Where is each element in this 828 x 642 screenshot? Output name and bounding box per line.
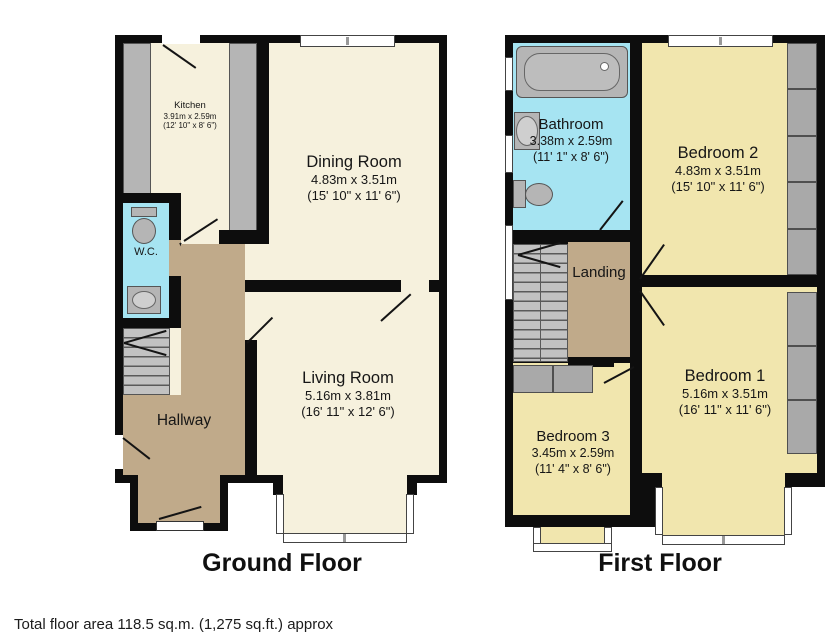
porch-floor (138, 475, 220, 523)
room-dims-m: 5.16m x 3.51m (635, 386, 815, 402)
room-label-kitchen: Kitchen 3.91m x 2.59m (12' 10" x 8' 6") (140, 100, 240, 131)
room-name: W.C. (123, 246, 169, 259)
room-label-wc: W.C. (123, 246, 169, 259)
hallway-floor (181, 244, 245, 475)
window (276, 494, 284, 534)
window-divider (343, 534, 346, 542)
kitchen-counter (229, 43, 257, 232)
room-dims-ft: (15' 10" x 11' 6") (264, 188, 444, 204)
landing-floor (568, 242, 630, 357)
window (784, 487, 792, 535)
wall (630, 230, 642, 242)
window-divider (346, 37, 349, 45)
door-opening (169, 240, 181, 276)
room-name: Bedroom 1 (635, 366, 815, 386)
door-opening (115, 435, 123, 469)
first-floor-title: First Floor (540, 549, 780, 578)
wall (257, 35, 269, 244)
room-label-dining: Dining Room 4.83m x 3.51m (15' 10" x 11'… (264, 152, 444, 204)
wall (505, 230, 600, 242)
bay-floor (283, 475, 407, 533)
room-name: Bedroom 2 (628, 143, 808, 163)
room-dims-m: 3.45m x 2.59m (503, 446, 643, 461)
bathtub-icon (524, 53, 620, 91)
window (406, 494, 414, 534)
wall (219, 230, 269, 244)
room-name: Dining Room (264, 152, 444, 172)
total-floor-area-note: Total floor area 118.5 sq.m. (1,275 sq.f… (14, 616, 333, 633)
wardrobe-unit (787, 292, 817, 346)
room-dims-m: 5.16m x 3.81m (258, 388, 438, 404)
wall (273, 475, 283, 495)
window-divider (722, 536, 725, 544)
window (505, 225, 513, 300)
room-dims-ft: (16' 11" x 11' 6") (635, 402, 815, 418)
room-label-living: Living Room 5.16m x 3.81m (16' 11" x 12'… (258, 368, 438, 420)
room-label-bedroom3: Bedroom 3 3.45m x 2.59m (11' 4" x 8' 6") (503, 428, 643, 477)
hallway-floor (123, 395, 181, 475)
room-label-bedroom1: Bedroom 1 5.16m x 3.51m (16' 11" x 11' 6… (635, 366, 815, 418)
wardrobe (513, 365, 593, 393)
wardrobe-unit (787, 89, 817, 135)
room-name: Kitchen (140, 100, 240, 112)
room-dims-ft: (15' 10" x 11' 6") (628, 179, 808, 195)
toilet-icon (132, 218, 156, 244)
room-label-landing: Landing (564, 264, 634, 282)
room-name: Bathroom (511, 116, 631, 134)
room-dims-ft: (12' 10" x 8' 6") (140, 121, 240, 131)
wall (245, 280, 401, 292)
room-dims-ft: (11' 1" x 8' 6") (511, 150, 631, 165)
wall (642, 275, 825, 287)
room-name: Hallway (134, 412, 234, 431)
room-dims-m: 4.83m x 3.51m (628, 163, 808, 179)
room-label-bedroom2: Bedroom 2 4.83m x 3.51m (15' 10" x 11' 6… (628, 143, 808, 195)
room-name: Living Room (258, 368, 438, 388)
wardrobe-unit (787, 229, 817, 275)
room-dims-ft: (11' 4" x 8' 6") (503, 462, 643, 477)
wall (630, 35, 642, 230)
room-name: Landing (564, 264, 634, 282)
room-dims-m: 4.83m x 3.51m (264, 172, 444, 188)
room-name: Bedroom 3 (503, 428, 643, 446)
sink-icon (132, 291, 156, 309)
wall (407, 475, 417, 495)
ground-floor-title: Ground Floor (162, 549, 402, 578)
drain-icon (600, 62, 609, 71)
wall (123, 318, 181, 328)
staircase (123, 328, 170, 395)
wardrobe-unit (553, 365, 593, 393)
window (655, 487, 663, 535)
door-opening (162, 35, 200, 44)
wardrobe-unit (787, 43, 817, 89)
window (505, 57, 513, 91)
toilet-icon (525, 183, 553, 206)
wardrobe-unit (513, 365, 553, 393)
front-door-opening (156, 521, 204, 531)
bay-floor (662, 473, 785, 535)
bay-floor (541, 527, 604, 543)
room-dims-ft: (16' 11" x 12' 6") (258, 404, 438, 420)
room-dims-m: 3.38m x 2.59m (511, 134, 631, 149)
room-dims-m: 3.91m x 2.59m (140, 112, 240, 122)
toilet-icon (131, 207, 157, 217)
wall (429, 280, 439, 292)
room-label-hallway: Hallway (134, 412, 234, 431)
floorplan-page: Kitchen 3.91m x 2.59m (12' 10" x 8' 6") … (0, 0, 828, 642)
room-label-bathroom: Bathroom 3.38m x 2.59m (11' 1" x 8' 6") (511, 116, 631, 165)
window-divider (719, 37, 722, 45)
wall (245, 340, 257, 475)
